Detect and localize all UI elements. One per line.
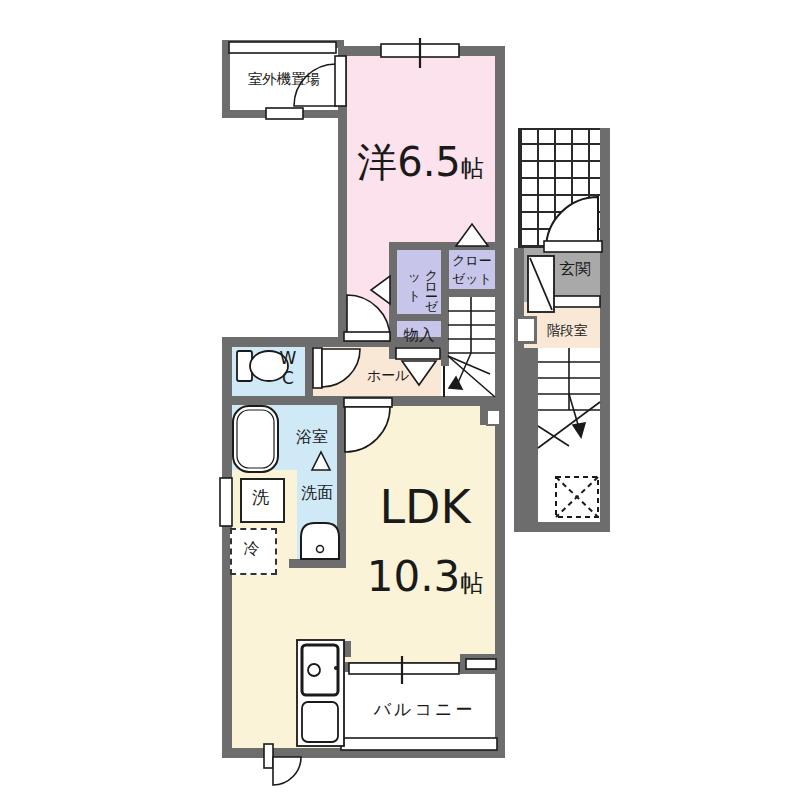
door-leaf bbox=[344, 332, 390, 341]
floor-plan: 室外機置場 洋6.5帖 クローゼット クローゼット 物入 ホール WC 浴室 洗… bbox=[0, 0, 800, 800]
door-leaf bbox=[264, 744, 273, 768]
ldk-size: 10.3 bbox=[367, 552, 461, 601]
window bbox=[220, 478, 232, 526]
door-triangle-bath bbox=[312, 452, 330, 470]
stairs-arrow bbox=[573, 423, 585, 437]
laundry-label: 洗 bbox=[240, 487, 281, 507]
stairs-upper bbox=[444, 297, 495, 397]
shoebox-icon bbox=[528, 256, 554, 312]
ldk-label: LDK bbox=[345, 480, 505, 535]
plan-symbols bbox=[0, 0, 800, 800]
washbasin-icon bbox=[301, 523, 339, 559]
refrigerator-label: 冷 bbox=[230, 539, 273, 558]
western-room-label: 洋6.5帖 bbox=[343, 138, 498, 186]
western-room-unit: 帖 bbox=[461, 155, 484, 181]
balcony-railing bbox=[341, 738, 497, 750]
stair-room-label: 階段室 bbox=[534, 322, 600, 338]
bathtub-icon bbox=[233, 406, 278, 472]
void-box bbox=[556, 477, 598, 517]
door-triangle-closet-right bbox=[456, 224, 488, 246]
ldk-unit: 帖 bbox=[460, 570, 483, 596]
entrance-label: 玄関 bbox=[552, 260, 598, 279]
ldk-size-label: 10.3帖 bbox=[340, 552, 510, 602]
window bbox=[229, 42, 336, 53]
entrance-step bbox=[553, 296, 600, 307]
window bbox=[266, 108, 303, 119]
storage-label: 物入 bbox=[397, 326, 441, 345]
window bbox=[466, 659, 496, 669]
window bbox=[349, 663, 459, 674]
door-triangle-closet-left bbox=[371, 276, 390, 304]
closet-left-label: クローゼット bbox=[400, 256, 440, 308]
hall-label: ホール bbox=[348, 367, 428, 384]
washroom-label: 洗面 bbox=[294, 483, 340, 502]
western-room-size: 洋6.5 bbox=[357, 139, 461, 185]
door-arc-exterior bbox=[273, 757, 301, 785]
balcony-label: バルコニー bbox=[352, 699, 497, 719]
bathroom-label: 浴室 bbox=[286, 427, 338, 446]
wc-label: WC bbox=[278, 349, 298, 388]
door-leaf-storage bbox=[396, 348, 440, 359]
door-leaf bbox=[313, 348, 322, 388]
closet-right-label: クローゼット bbox=[450, 252, 494, 287]
door-arc-ldk bbox=[345, 407, 390, 452]
stairs-lower bbox=[538, 348, 600, 448]
outdoor-unit-label: 室外機置場 bbox=[228, 71, 340, 88]
door-leaf bbox=[344, 398, 392, 407]
door-leaf bbox=[544, 241, 602, 252]
kitchen-icon bbox=[297, 640, 344, 746]
